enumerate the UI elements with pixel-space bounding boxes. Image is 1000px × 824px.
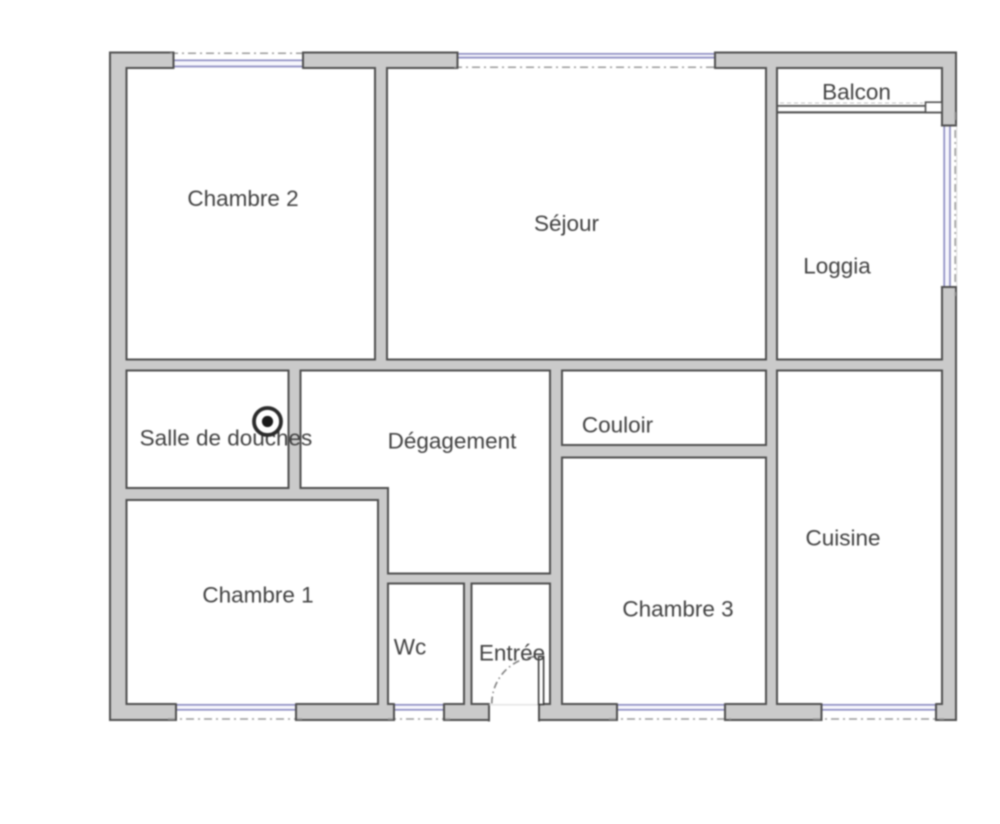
svg-text:Loggia: Loggia (803, 254, 871, 279)
svg-text:Chambre 3: Chambre 3 (622, 597, 733, 622)
svg-text:Entrée: Entrée (479, 641, 545, 666)
svg-text:Wc: Wc (394, 635, 427, 660)
svg-text:Salle de douches: Salle de douches (140, 426, 313, 451)
svg-text:Dégagement: Dégagement (388, 429, 518, 454)
svg-text:Séjour: Séjour (534, 211, 600, 236)
svg-text:Balcon: Balcon (822, 80, 891, 105)
svg-text:Chambre 2: Chambre 2 (187, 186, 298, 211)
svg-text:Chambre 1: Chambre 1 (202, 583, 313, 608)
svg-text:Cuisine: Cuisine (805, 526, 880, 551)
svg-text:Couloir: Couloir (582, 413, 654, 438)
